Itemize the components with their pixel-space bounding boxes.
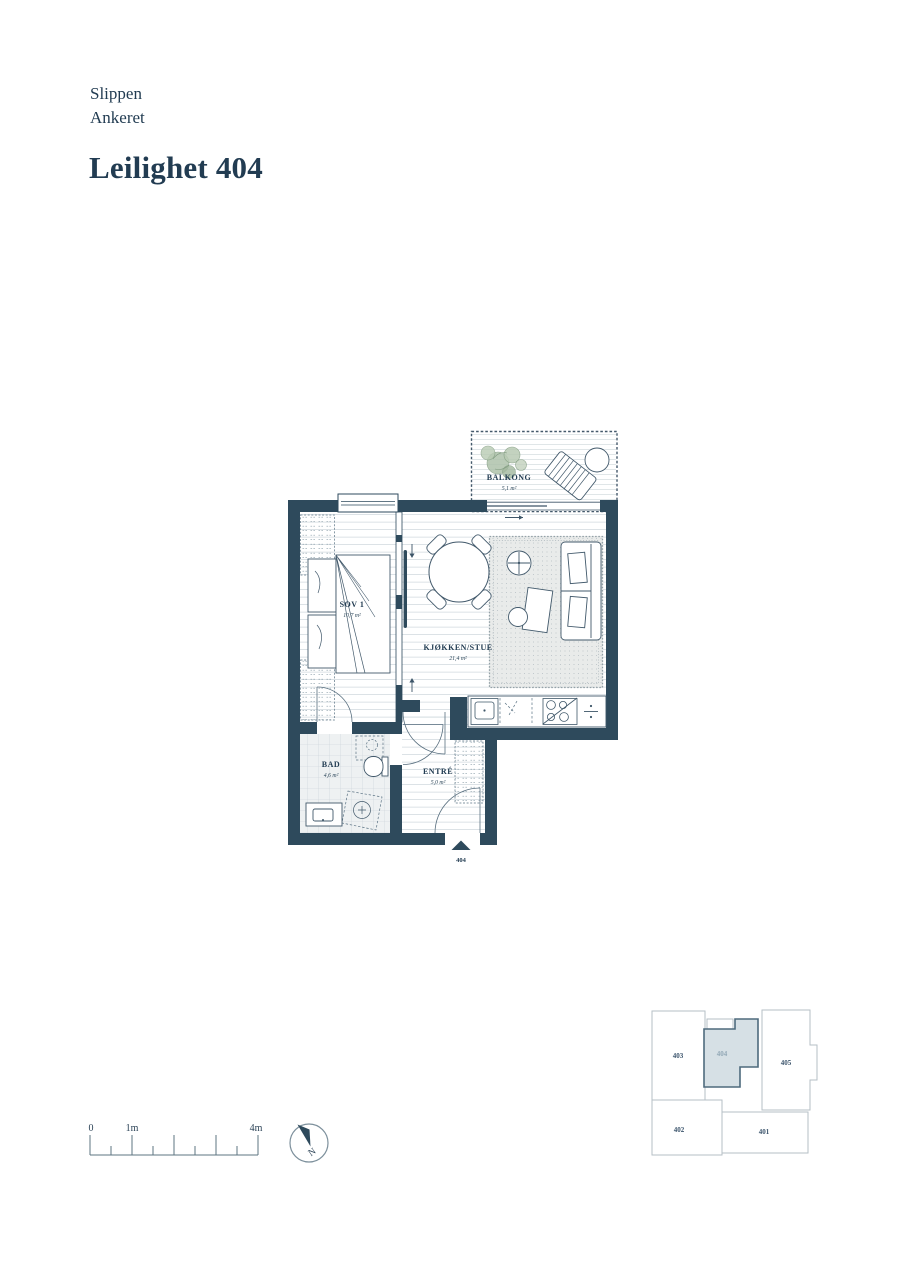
project-name: Slippen: [90, 82, 145, 106]
bath-vanity: [306, 803, 342, 826]
entry-label: ENTRÉ: [423, 766, 453, 776]
coffee-table: [522, 588, 553, 633]
partition-door-leaf: [404, 550, 407, 628]
building-name: Ankeret: [90, 106, 145, 130]
keyplan-label-404: 404: [717, 1050, 728, 1058]
keyplan-unit-402: [652, 1100, 722, 1155]
keyplan-label-405: 405: [781, 1059, 792, 1067]
pouf: [509, 608, 528, 627]
scale-label-4m: 4m: [250, 1123, 263, 1134]
keyplan-label-401: 401: [759, 1128, 770, 1136]
keyplan-label-403: 403: [673, 1052, 684, 1060]
lamp-icon: [507, 551, 531, 575]
kitchen-counter: [468, 696, 606, 727]
entrance-arrow-icon: [452, 841, 471, 851]
balcony-area: 5,1 m²: [502, 486, 517, 492]
bedroom-area: 10,7 m²: [343, 613, 361, 619]
balcony-label: BALKONG: [487, 473, 531, 482]
page-title: Leilighet 404: [89, 150, 263, 186]
north-label: N: [307, 1147, 318, 1159]
keyplan-unit-404: [704, 1019, 758, 1087]
sofa: [561, 542, 601, 640]
entrance-marker: 404: [452, 841, 471, 865]
entry-area: 5,0 m²: [431, 780, 446, 786]
floor-plan: SOV 1 10,7 m² KJØKKEN/STUE 21,4 m² BAD 4…: [285, 425, 625, 875]
scale-label-1m: 1m: [126, 1123, 139, 1134]
scale-label-0: 0: [89, 1123, 94, 1134]
bedroom-window: [338, 494, 398, 512]
living-label: KJØKKEN/STUE: [423, 643, 492, 652]
entrance-unit-number: 404: [456, 857, 467, 864]
bedroom-label: SOV 1: [340, 600, 365, 609]
dining-table: [425, 533, 493, 611]
side-table: [585, 448, 609, 472]
scale-bar: 0 1m 4m: [85, 1122, 270, 1164]
entry-wardrobe: [455, 741, 483, 803]
scale-bar-ticks: [90, 1135, 258, 1155]
project-header: Slippen Ankeret: [90, 82, 145, 130]
keyplan-label-402: 402: [674, 1126, 685, 1134]
living-area: 21,4 m²: [449, 655, 467, 662]
bath-area: 4,6 m²: [324, 772, 339, 779]
compass: N: [284, 1118, 334, 1168]
floor-plan-page: Slippen Ankeret Leilighet 404: [0, 0, 905, 1280]
key-plan: 403 404 405 402 401: [645, 1005, 845, 1180]
toilet: [364, 757, 388, 777]
north-arrow-icon: [298, 1125, 311, 1147]
bath-label: BAD: [322, 760, 340, 769]
